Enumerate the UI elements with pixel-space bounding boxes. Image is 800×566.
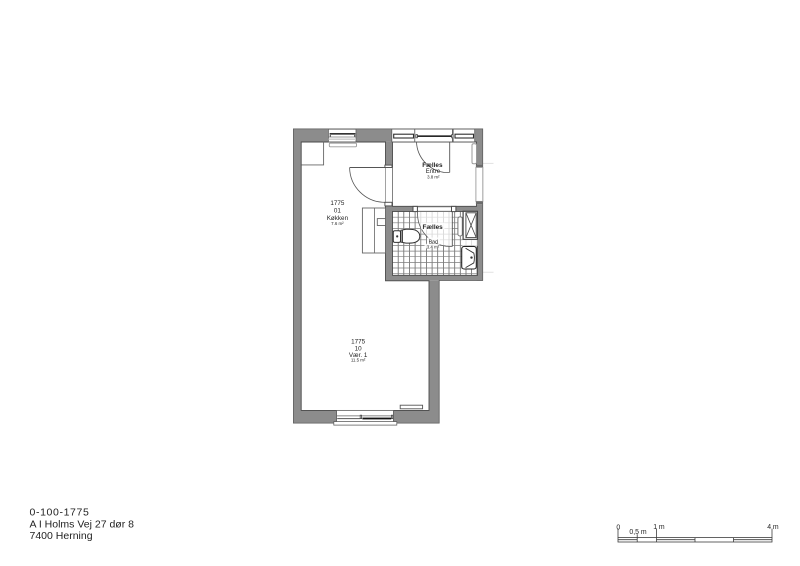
svg-text:1 m: 1 m	[653, 524, 665, 531]
svg-text:7.6 m²: 7.6 m²	[331, 221, 344, 226]
svg-text:1775: 1775	[330, 200, 345, 207]
svg-text:11.5 m²: 11.5 m²	[351, 358, 366, 363]
svg-text:0,5 m: 0,5 m	[629, 529, 646, 536]
svg-text:Fælles: Fælles	[422, 224, 443, 231]
svg-text:3.4 m²: 3.4 m²	[427, 244, 440, 249]
svg-text:01: 01	[334, 208, 342, 215]
svg-text:4 m: 4 m	[767, 524, 779, 531]
svg-text:Fælles: Fælles	[422, 162, 443, 169]
svg-text:3.8 m²: 3.8 m²	[427, 175, 440, 180]
svg-text:7400 Herning: 7400 Herning	[30, 530, 93, 542]
svg-text:0: 0	[616, 524, 620, 531]
svg-text:1775: 1775	[351, 338, 366, 345]
svg-text:A I Holms Vej 27 dør 8: A I Holms Vej 27 dør 8	[30, 519, 135, 531]
svg-text:0-100-1775: 0-100-1775	[30, 507, 90, 519]
